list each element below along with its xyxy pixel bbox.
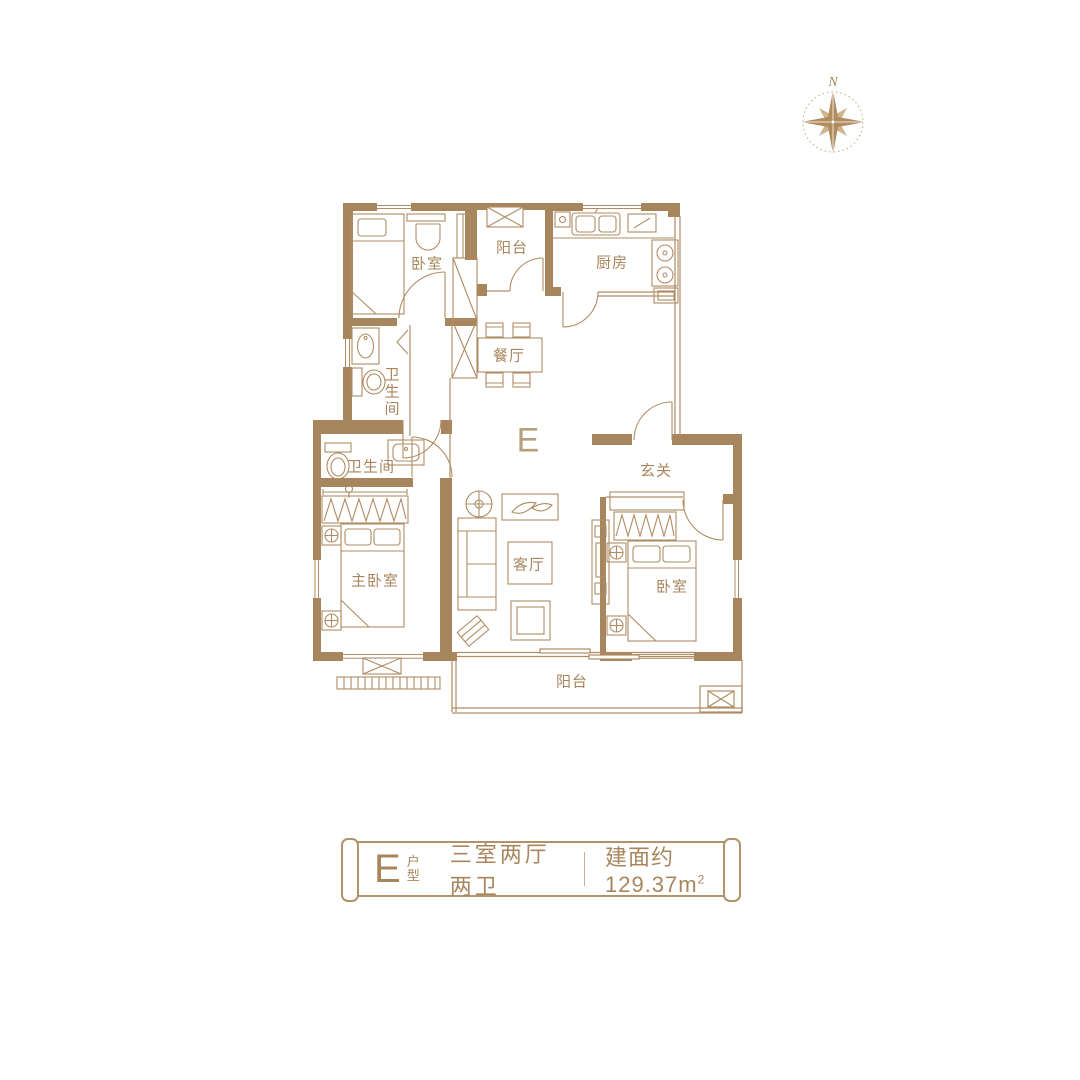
room-label-bedroom-right: 卧室 — [656, 576, 688, 597]
furniture-layer — [322, 207, 696, 689]
banner-area-text: 建面约129.37m2 — [605, 840, 732, 898]
kitchen-drain — [555, 212, 570, 227]
nightstand-right-1 — [607, 543, 626, 562]
banner-unit-letter: E — [374, 849, 401, 889]
banner-divider — [584, 852, 585, 886]
room-label-balcony-top: 阳台 — [496, 237, 528, 258]
banner-area-superscript: 2 — [698, 873, 706, 887]
wardrobe-master — [322, 489, 408, 523]
room-label-kitchen: 厨房 — [596, 252, 628, 273]
room-label-balcony-bottom: 阳台 — [556, 671, 588, 692]
bed-top-bedroom — [352, 214, 404, 314]
ac-unit-icon-top — [487, 207, 523, 227]
room-label-bath-upper: 卫生间 — [381, 367, 402, 418]
banner-unit-type-label: 户型 — [407, 855, 420, 883]
wardrobe-right-bedroom — [610, 492, 684, 540]
stove-icon — [652, 240, 678, 286]
sink-upper-bath — [352, 328, 379, 364]
room-label-master-bedroom: 主卧室 — [351, 570, 399, 591]
banner-scroll-right-curl — [723, 838, 741, 902]
desk-chair-top-bedroom — [407, 214, 445, 250]
nightstand-master-2 — [322, 611, 341, 630]
side-table-icon — [466, 491, 492, 517]
dining-cabinet — [452, 320, 477, 378]
door-bath-lower — [412, 437, 452, 477]
floor-plan-page: N 卧室 阳台 厨房 餐厅 卫生间 卫生间 主卧室 客厅 玄关 卧室 阳台 E … — [0, 0, 1080, 1080]
thin-walls-layer — [410, 216, 742, 713]
planter-icon — [337, 677, 440, 689]
room-label-entry: 玄关 — [640, 460, 672, 481]
nightstand-right-2 — [607, 616, 626, 635]
door-kitchen — [563, 292, 598, 327]
door-entry — [634, 402, 672, 440]
plant-box-icon — [502, 494, 558, 520]
banner-area-value: 建面约129.37m — [605, 845, 698, 897]
compass-north-label: N — [827, 75, 838, 90]
room-label-bedroom-top: 卧室 — [411, 253, 443, 274]
door-bedroom-top — [399, 272, 445, 318]
door-master-hall — [403, 420, 441, 458]
floor-plan-drawing: N — [0, 0, 1080, 1080]
room-label-bath-lower: 卫生间 — [347, 456, 395, 477]
unit-letter-label: E — [517, 422, 540, 461]
unit-info-banner: E 户型 三室两厅两卫 建面约129.37m2 — [348, 841, 734, 897]
door-bath-upper — [397, 330, 408, 354]
door-balcony-top — [510, 258, 543, 291]
compass-icon: N — [801, 75, 865, 154]
room-label-dining: 餐厅 — [493, 345, 525, 366]
armchair — [511, 601, 550, 640]
floor-lamp-icon — [457, 616, 488, 647]
banner-layout-text: 三室两厅两卫 — [450, 837, 563, 901]
sofa — [458, 518, 496, 610]
room-label-living: 客厅 — [513, 554, 545, 575]
cutting-board-icon — [628, 214, 656, 232]
nightstand-master-1 — [322, 526, 341, 545]
kitchen-sink-icon — [572, 208, 620, 235]
wardrobe-top-bedroom — [453, 258, 477, 320]
banner-scroll-left-curl — [341, 838, 359, 902]
ac-unit-icon-bottom — [363, 658, 401, 674]
door-bedroom-right — [683, 500, 723, 540]
